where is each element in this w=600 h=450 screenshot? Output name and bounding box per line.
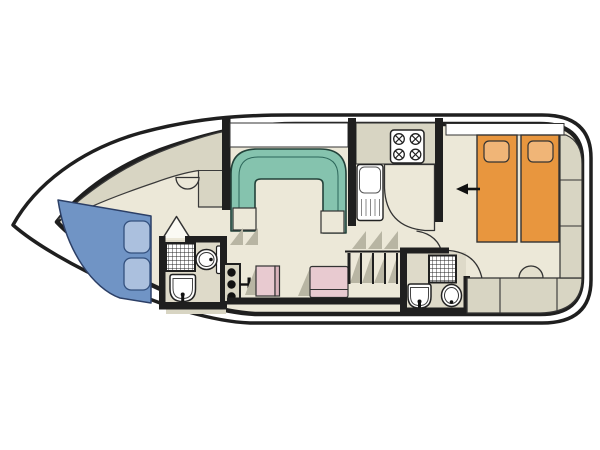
galley-sink [357, 165, 383, 221]
windshield-window [230, 123, 348, 147]
washbasin [408, 284, 431, 309]
wall-cabin-divider [222, 118, 231, 210]
wall-saloon-bottom [227, 298, 407, 305]
bench-seating [467, 278, 582, 313]
wall-galley-right [435, 118, 443, 222]
toilet [442, 285, 462, 307]
basin-tap [181, 293, 185, 297]
wall [400, 248, 407, 315]
burner [394, 149, 405, 160]
basin-tap [418, 300, 422, 304]
floor-plan-svg [0, 0, 600, 450]
storage-lockers [560, 135, 582, 278]
deck-strip [166, 309, 226, 314]
wall [185, 236, 222, 243]
dinette-step-box [321, 211, 344, 233]
wall [159, 302, 227, 310]
burner [394, 134, 405, 145]
aft-window [446, 124, 564, 136]
washbasin [170, 275, 196, 302]
wall [400, 308, 472, 315]
helm-knob [227, 280, 235, 288]
wall [400, 248, 449, 254]
wall [159, 236, 166, 309]
helm-knob [227, 268, 235, 276]
toilet-drain [450, 300, 454, 304]
toilet-drain [209, 258, 213, 262]
companion-seat [310, 267, 348, 298]
burner [410, 149, 421, 160]
berth-pillow [124, 258, 150, 290]
wall-galley-left [348, 118, 356, 226]
burner [410, 134, 421, 145]
dinette-step-box [233, 208, 256, 230]
helm-seat [256, 266, 275, 296]
berth-pillow [124, 221, 150, 253]
berth-pillow [528, 141, 553, 162]
shower-tray [429, 256, 456, 283]
helm-seat-back [275, 266, 280, 296]
boat-floor-plan [0, 0, 600, 450]
basin-tap-stem [181, 296, 184, 302]
berth-pillow [484, 141, 509, 162]
stove-4-burner [391, 130, 425, 163]
forward-bathroom [159, 236, 227, 314]
shower-tray [166, 243, 195, 271]
